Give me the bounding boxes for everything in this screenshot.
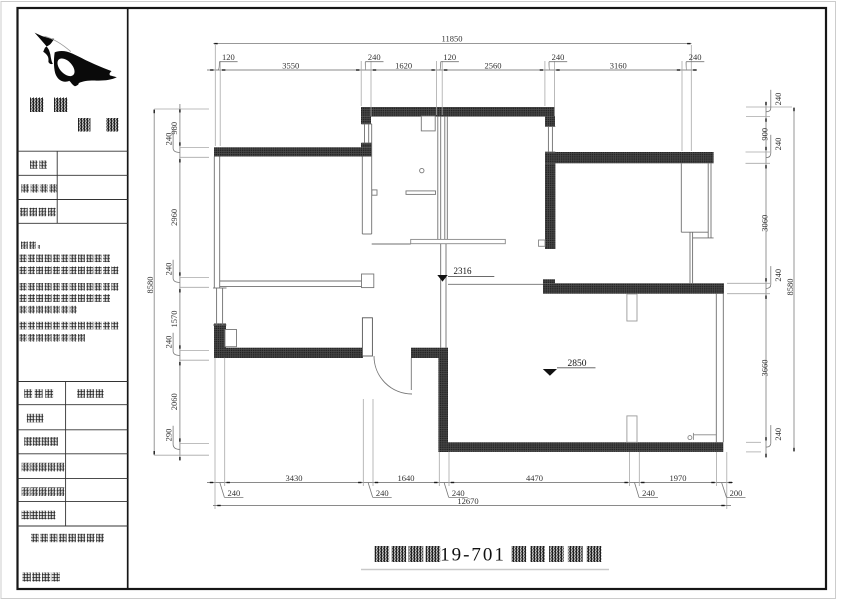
svg-text:240: 240 (773, 138, 783, 151)
svg-text:1620: 1620 (395, 60, 412, 70)
svg-text:3550: 3550 (282, 60, 299, 70)
svg-text:2316: 2316 (454, 266, 473, 276)
svg-text:3160: 3160 (610, 60, 627, 70)
svg-text:4470: 4470 (526, 473, 543, 483)
svg-text:1570: 1570 (169, 311, 179, 328)
svg-text:240: 240 (164, 133, 174, 146)
svg-text:240: 240 (164, 263, 174, 276)
svg-text:290: 290 (164, 429, 174, 442)
svg-text:3430: 3430 (286, 473, 303, 483)
svg-text:2850: 2850 (568, 359, 587, 369)
svg-text:3660: 3660 (760, 360, 770, 377)
svg-text:120: 120 (222, 52, 235, 62)
svg-text:11850: 11850 (442, 33, 463, 43)
svg-text:240: 240 (773, 428, 783, 441)
svg-text:1640: 1640 (398, 473, 415, 483)
svg-text:240: 240 (164, 336, 174, 349)
svg-text:240: 240 (689, 52, 702, 62)
svg-text:240: 240 (773, 269, 783, 282)
svg-text:900: 900 (760, 128, 770, 141)
svg-text:240: 240 (368, 52, 381, 62)
svg-text:3060: 3060 (760, 215, 770, 232)
svg-text:240: 240 (552, 52, 565, 62)
svg-text:19-701: 19-701 (440, 545, 506, 566)
svg-text:240: 240 (376, 488, 389, 498)
svg-text:240: 240 (228, 488, 241, 498)
svg-text:120: 120 (443, 52, 456, 62)
svg-text:240: 240 (773, 93, 783, 106)
svg-text:8580: 8580 (145, 277, 155, 294)
svg-text:2060: 2060 (169, 393, 179, 410)
svg-text:240: 240 (642, 488, 655, 498)
svg-text:2560: 2560 (485, 60, 502, 70)
svg-text:8580: 8580 (785, 279, 795, 296)
svg-text:200: 200 (730, 488, 743, 498)
svg-text:2960: 2960 (169, 209, 179, 226)
svg-text:1970: 1970 (670, 473, 687, 483)
svg-text:12670: 12670 (457, 496, 478, 506)
